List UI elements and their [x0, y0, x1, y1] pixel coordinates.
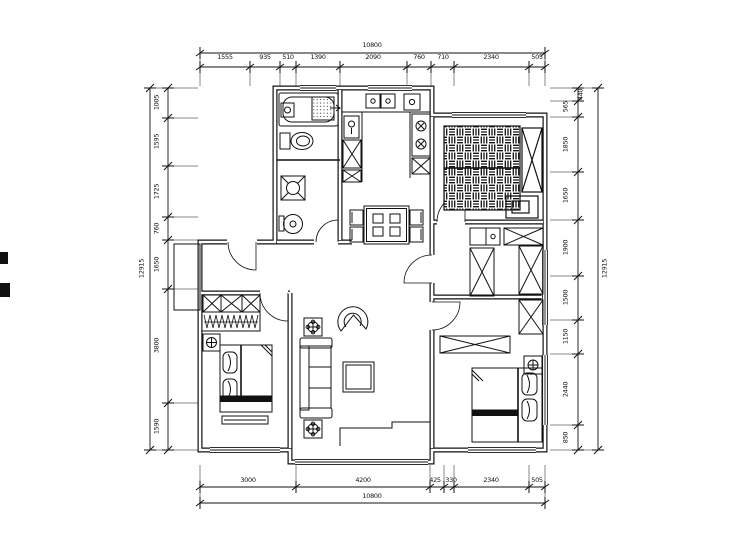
nightstand-plant-icon — [524, 356, 542, 374]
double-bed-icon — [220, 345, 272, 412]
nightstand-plant-icon — [203, 334, 220, 351]
stove-icon — [412, 114, 430, 156]
door-arc-icon — [228, 242, 256, 270]
dim-label: 510 — [273, 53, 303, 62]
sofa-icon — [300, 338, 332, 418]
dim-label: 330 — [436, 476, 466, 485]
dim-label: 1555 — [210, 53, 240, 62]
dim-left-total: 12915 — [138, 251, 147, 287]
hanging-rail-icon — [202, 312, 260, 331]
dim-label: 505 — [522, 476, 552, 485]
bedroom-left — [202, 295, 272, 424]
dining-table-icon — [364, 206, 409, 244]
dim-label: 710 — [428, 53, 458, 62]
kitchen-sink-icon — [366, 94, 380, 108]
dim-label: 1005 — [153, 85, 162, 121]
dim-label: 1850 — [562, 127, 571, 163]
dim-label: 2090 — [358, 53, 388, 62]
bedroom-bottom-right — [440, 300, 543, 442]
dim-label: 850 — [562, 420, 571, 456]
kitchen-sink-icon — [381, 94, 395, 108]
dim-label: 1900 — [562, 230, 571, 266]
tv-cabinet-icon — [340, 422, 430, 446]
floor-plan-page: 10800 1555 935 510 1390 2090 760 710 234… — [0, 0, 740, 555]
dim-top-total: 10800 — [352, 41, 392, 50]
kitchen — [342, 94, 430, 182]
living-room — [300, 307, 430, 446]
porch-outline — [174, 244, 200, 310]
dim-label: 1500 — [562, 280, 571, 316]
dim-label: 1150 — [562, 319, 571, 355]
dim-label: 3000 — [233, 476, 263, 485]
doors — [228, 194, 465, 330]
walk-in-closet — [470, 228, 543, 296]
dim-label: 760 — [153, 211, 162, 247]
dim-label: 1725 — [153, 174, 162, 210]
door-arc-icon — [316, 220, 338, 242]
edge-artifact — [0, 252, 10, 297]
dining-area — [350, 206, 423, 244]
dim-label: 1390 — [303, 53, 333, 62]
dim-right-total: 12915 — [601, 251, 610, 287]
dim-label: 2340 — [476, 53, 506, 62]
door-arc-icon — [432, 302, 460, 330]
dim-bottom-total: 10800 — [352, 492, 392, 501]
bedroom-top-right — [444, 126, 542, 218]
side-table-plant-icon — [304, 420, 322, 438]
floor-plan-drawing — [0, 0, 740, 555]
coffee-table-icon — [343, 362, 374, 392]
door-arc-icon — [404, 255, 432, 283]
door-arc-icon — [260, 293, 288, 321]
dim-label: 1595 — [153, 124, 162, 160]
dim-label: 2440 — [562, 372, 571, 408]
dim-label: 505 — [522, 53, 552, 62]
side-table-plant-icon — [304, 318, 322, 336]
toilet-icon — [280, 133, 290, 149]
bathroom — [277, 93, 340, 234]
entry-door-opening — [227, 239, 257, 246]
dim-label: 1650 — [562, 178, 571, 214]
dim-label: 1590 — [153, 409, 162, 445]
water-heater-icon — [284, 215, 303, 234]
armchair-icon — [338, 307, 368, 331]
dim-label: 440 — [577, 77, 586, 113]
dim-label: 2340 — [476, 476, 506, 485]
double-bed-icon — [472, 368, 542, 442]
dim-label: 1650 — [153, 247, 162, 283]
dim-label: 4200 — [348, 476, 378, 485]
dim-label: 3800 — [153, 328, 162, 364]
dim-label: 565 — [562, 89, 571, 125]
entry — [174, 244, 200, 310]
